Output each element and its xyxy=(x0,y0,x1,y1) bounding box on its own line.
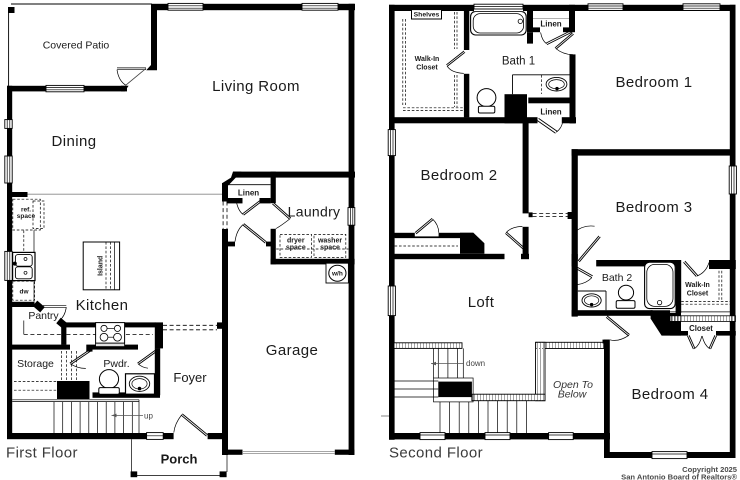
svg-text:Bedroom 1: Bedroom 1 xyxy=(616,74,693,91)
svg-text:Bedroom 2: Bedroom 2 xyxy=(421,167,498,184)
svg-text:Pantry: Pantry xyxy=(28,310,59,322)
svg-text:dryer: dryer xyxy=(287,238,305,245)
svg-text:w/h: w/h xyxy=(331,271,343,278)
svg-text:dw: dw xyxy=(19,288,29,295)
svg-text:Living Room: Living Room xyxy=(212,78,300,95)
svg-text:Covered Patio: Covered Patio xyxy=(43,40,110,52)
svg-text:space: space xyxy=(17,213,36,220)
svg-text:Closet: Closet xyxy=(416,65,438,72)
svg-text:Bedroom 4: Bedroom 4 xyxy=(632,386,709,403)
svg-text:San Antonio Board of Realtors®: San Antonio Board of Realtors® xyxy=(621,472,737,480)
svg-text:space: space xyxy=(286,245,306,252)
svg-text:Linen: Linen xyxy=(540,20,561,29)
svg-text:Kitchen: Kitchen xyxy=(76,297,129,314)
svg-text:up: up xyxy=(144,411,153,420)
svg-text:Garage: Garage xyxy=(266,342,318,359)
svg-text:Porch: Porch xyxy=(161,452,198,467)
svg-text:Storage: Storage xyxy=(17,358,54,370)
svg-text:Walk-In: Walk-In xyxy=(415,56,440,63)
svg-text:Closet: Closet xyxy=(687,290,709,297)
svg-text:washer: washer xyxy=(317,238,342,245)
svg-text:Foyer: Foyer xyxy=(173,370,207,385)
svg-text:Pwdr.: Pwdr. xyxy=(103,358,129,370)
svg-text:Shelves: Shelves xyxy=(414,12,440,19)
svg-text:Linen: Linen xyxy=(238,189,259,198)
svg-text:Second Floor: Second Floor xyxy=(389,445,483,462)
svg-text:Bath 1: Bath 1 xyxy=(502,56,535,68)
svg-text:down: down xyxy=(466,359,485,368)
svg-text:Linen: Linen xyxy=(540,108,561,117)
svg-text:Bath 2: Bath 2 xyxy=(602,272,633,284)
svg-text:Laundry: Laundry xyxy=(288,203,341,219)
svg-text:Below: Below xyxy=(558,388,588,400)
svg-text:Bedroom 3: Bedroom 3 xyxy=(616,199,693,216)
svg-text:Loft: Loft xyxy=(468,294,495,311)
svg-text:space: space xyxy=(320,245,340,252)
svg-text:Island: Island xyxy=(98,256,105,276)
svg-text:First Floor: First Floor xyxy=(6,445,78,462)
svg-text:Closet: Closet xyxy=(689,324,713,333)
svg-text:Walk-In: Walk-In xyxy=(685,282,710,289)
svg-text:Dining: Dining xyxy=(52,133,97,150)
